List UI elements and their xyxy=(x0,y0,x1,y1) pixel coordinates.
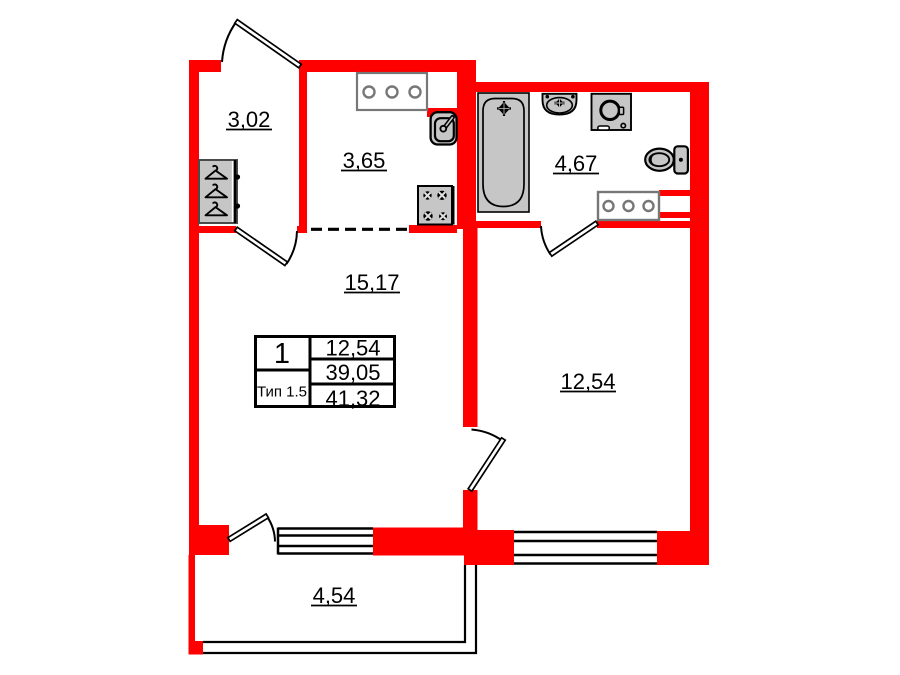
svg-text:12,54: 12,54 xyxy=(560,369,615,394)
svg-text:15,17: 15,17 xyxy=(344,270,399,295)
svg-text:1: 1 xyxy=(274,338,290,370)
svg-text:4,67: 4,67 xyxy=(555,151,598,176)
svg-text:Тип 1.5: Тип 1.5 xyxy=(257,384,307,401)
svg-text:3,02: 3,02 xyxy=(228,107,271,132)
svg-text:4,54: 4,54 xyxy=(313,583,356,608)
svg-text:39,05: 39,05 xyxy=(325,360,380,385)
svg-text:41,32: 41,32 xyxy=(325,386,380,411)
svg-text:12,54: 12,54 xyxy=(325,336,380,361)
svg-text:3,65: 3,65 xyxy=(343,148,386,173)
